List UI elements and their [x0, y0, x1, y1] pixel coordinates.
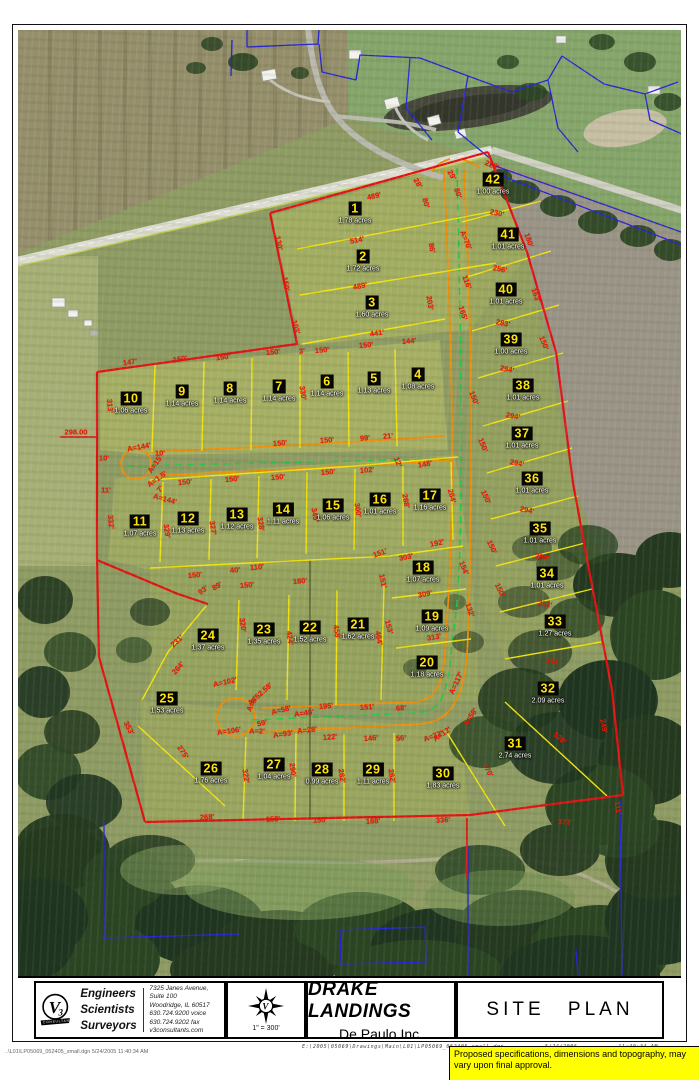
title-block-firm: V 3 CONSULTANTS Engineers Scientists Sur… — [34, 981, 226, 1039]
svg-text:3: 3 — [57, 1008, 63, 1018]
client-name: De Paulo Inc. — [339, 1026, 423, 1042]
title-block-project: DRAKE LANDINGS De Paulo Inc. — [306, 981, 456, 1039]
map-scale: 1" = 300' — [252, 1025, 279, 1032]
disclaimer-note: Proposed specifications, dimensions and … — [449, 1046, 699, 1080]
footer-file-reference: ..\L01\LP05069_052405_small.dgn 5/24/200… — [5, 1049, 148, 1055]
firm-roles: Engineers Scientists Surveyors — [80, 986, 136, 1034]
project-name: DRAKE LANDINGS — [308, 979, 454, 1023]
title-block-sheet: SITE PLAN — [456, 981, 664, 1039]
sheet-frame — [12, 24, 687, 1042]
title-block-compass: V 1" = 300' — [226, 981, 306, 1039]
divider — [143, 988, 144, 1032]
firm-address: 7325 Janes Avenue, Suite 100 Woodridge, … — [149, 985, 221, 1036]
north-compass-icon: V — [247, 988, 285, 1024]
svg-text:V: V — [262, 1002, 269, 1012]
sheet-title: SITE PLAN — [486, 999, 633, 1021]
v3-consultants-logo: V 3 CONSULTANTS — [39, 989, 76, 1031]
site-plan-sheet: 489'514'489'441'228'230'256'283'28'80'29… — [0, 0, 699, 1080]
